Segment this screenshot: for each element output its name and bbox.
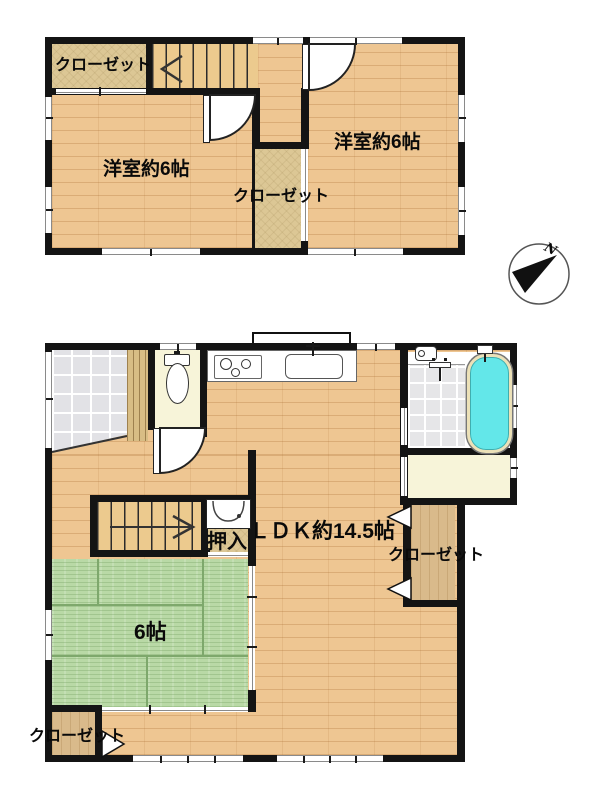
stove-burner [241,359,251,369]
window [510,458,517,478]
room-left-label-2f: 洋室約6帖 [103,160,190,181]
window [357,343,395,350]
tatami-mat-line [202,559,204,657]
shower-knob [444,358,447,361]
entrance-step-edge [52,430,132,456]
door-tick [247,646,257,648]
compass-needle-icon [505,240,575,310]
wall [252,142,308,149]
stairs-arrow-icon [105,512,200,542]
tatami-label: 6帖 [134,621,167,644]
window [277,755,383,762]
closet-right-label: クローゼット [388,547,484,565]
window [253,37,303,44]
closet-sliding-door [56,89,146,94]
door-leaf [302,44,309,90]
tatami-mat-line [52,604,203,606]
door-swing-arc [160,428,205,473]
tatami-hall-sliding-door [102,707,248,712]
door-tick [99,87,101,96]
wall [301,88,309,149]
bathtub-faucet-icon [477,345,493,354]
bathtub-faucet-pipe [484,354,486,362]
oshiire-label: 押入 [207,531,247,553]
door-swing-arc [210,95,255,140]
shower-pipe [439,368,441,381]
door-leaf [153,428,160,474]
tatami-mat-line [97,559,99,605]
washroom [408,455,510,498]
stairs-arrow-icon [158,52,188,84]
wall [45,705,102,712]
window [458,187,465,235]
window [45,610,52,660]
door-tick [247,596,257,598]
tatami-ldk-sliding-door [249,566,255,690]
door-tick [204,705,206,714]
toilet-bowl-icon [166,363,189,404]
window [458,95,465,142]
tatami-mat-line [52,655,248,657]
window [45,97,52,140]
washbasin-bowl [208,500,249,526]
window [308,248,403,255]
wall [248,557,256,566]
wall [248,690,256,712]
window [102,248,200,255]
wall [457,498,465,762]
entrance-step-strip [127,350,148,441]
bathtub-icon [467,354,512,453]
closet-label-2f: クローゼット [55,57,151,75]
shower-knob [432,358,435,361]
wall [90,550,210,557]
wall [301,241,308,248]
washer-pan-drain [418,350,425,357]
room-right-label-2f: 洋室約6帖 [334,133,421,154]
closet-door-icon [385,577,413,603]
bathroom-sliding-door [401,408,407,445]
door-tick [149,705,151,714]
window [160,343,196,350]
wall [90,495,97,557]
wall [45,343,517,350]
tatami-mat-line [146,655,148,707]
stove-burner [231,368,240,377]
entrance-sliding-door [45,352,52,448]
window [133,755,243,762]
window [310,37,402,44]
window [45,187,52,233]
wall [200,343,207,437]
sink-faucet-icon [306,345,320,347]
stove-burner [220,358,232,370]
toilet-flush-button [174,351,180,354]
ldk-label: ＬＤＫ約14.5帖 [249,520,395,543]
washroom-sliding-door [401,457,407,496]
closet-middle-label-2f: クローゼット [233,188,329,206]
kitchen-sink-icon [285,354,343,379]
door-leaf [203,95,210,143]
wall [148,343,155,430]
closet-bottom-left-label: クローゼット [29,728,125,746]
floor-plan-page: クローゼット 洋室約6帖 洋室約6帖 クローゼット N [0,0,600,802]
door-swing-arc [309,44,355,90]
